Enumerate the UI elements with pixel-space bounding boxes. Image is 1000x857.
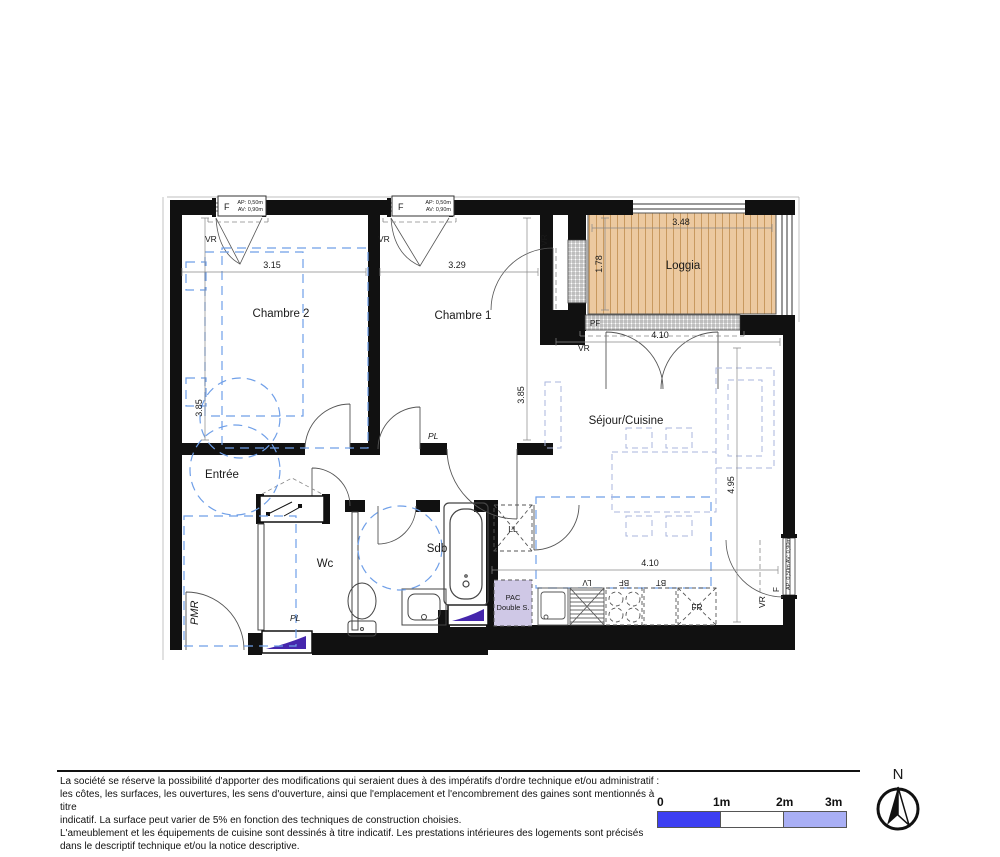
facade-vent-2 bbox=[448, 605, 488, 625]
title-block-rule bbox=[57, 770, 860, 772]
pf-label: PF bbox=[590, 319, 600, 328]
kitchen-appliances bbox=[538, 588, 716, 625]
scale-bar: 0 1m 2m 3m bbox=[657, 795, 847, 828]
fridge-label: FR bbox=[691, 602, 702, 612]
loggia-doors bbox=[606, 332, 718, 389]
scale-tick-2m: 2m bbox=[776, 795, 793, 809]
room-chambre1: Chambre 1 bbox=[435, 310, 492, 322]
north-label: N bbox=[893, 766, 904, 783]
partitions bbox=[258, 512, 358, 630]
dim-sejour-h: 4.95 bbox=[726, 476, 736, 494]
scale-tick-3m: 3m bbox=[825, 795, 842, 809]
window-ap-label: AP: 0,50m bbox=[425, 200, 451, 206]
vr-label-5: VR bbox=[757, 596, 767, 608]
dim-chambre1-h: 3.85 bbox=[516, 386, 526, 404]
disclaimer: La société se réserve la possibilité d'a… bbox=[60, 775, 660, 853]
room-chambre2: Chambre 2 bbox=[253, 308, 310, 320]
dishwasher-label: LV bbox=[582, 578, 592, 587]
side-window-spec: AP: 0,50m AV: 0,90m bbox=[786, 538, 792, 590]
disclaimer-line: dans le descriptif technique et/ou la no… bbox=[60, 840, 660, 853]
dim-loggia-w: 3.48 bbox=[672, 217, 690, 227]
room-pmr: PMR bbox=[189, 601, 201, 626]
dim-kitchen-w: 4.10 bbox=[641, 558, 659, 568]
room-wc: Wc bbox=[317, 558, 334, 570]
side-window-f: F bbox=[772, 587, 781, 592]
vr-label-1: VR bbox=[205, 234, 217, 244]
pac-unit: PAC Double S. bbox=[494, 580, 532, 626]
pac-label-1: PAC bbox=[506, 593, 521, 602]
bathtub bbox=[444, 503, 488, 605]
scale-tick-0: 0 bbox=[657, 795, 664, 809]
window-label-box-2: F AP: 0,50m AV: 0,90m bbox=[392, 196, 454, 216]
disclaimer-line: La société se réserve la possibilité d'a… bbox=[60, 775, 660, 788]
scale-segment-3 bbox=[784, 812, 846, 827]
north-arrow-svg: N bbox=[868, 765, 928, 840]
north-arrow: N bbox=[868, 765, 928, 845]
chambre2-furniture bbox=[186, 248, 368, 458]
window-ap-label: AP: 0,50m bbox=[237, 200, 263, 206]
vr-label-3: VR bbox=[539, 234, 549, 246]
vr-label-4: VR bbox=[578, 343, 590, 353]
window-av-label: AV: 0,90m bbox=[238, 207, 263, 213]
dim-loggia-h: 1.78 bbox=[594, 255, 604, 273]
window-f-label: F bbox=[224, 202, 230, 212]
dim-chambre2-w: 3.15 bbox=[263, 260, 281, 270]
window-av-label: AV: 0,90m bbox=[426, 207, 451, 213]
window-label-box-side: AP: 0,50m AV: 0,90m F bbox=[772, 538, 792, 592]
disclaimer-line: indicatif. La surface peut varier de 5% … bbox=[60, 814, 660, 827]
disclaimer-line: L'ameublement et les équipements de cuis… bbox=[60, 827, 660, 840]
room-sdb: Sdb bbox=[427, 543, 447, 555]
scale-bar-segments bbox=[657, 811, 847, 828]
closet-pl-1: PL bbox=[290, 613, 301, 623]
scale-tick-1m: 1m bbox=[713, 795, 730, 809]
floor-plan-drawing: F AP: 0,50m AV: 0,90m F AP: 0,50m AV: 0,… bbox=[0, 0, 1000, 770]
room-loggia: Loggia bbox=[666, 260, 701, 272]
kitchen-zone-dash bbox=[536, 497, 711, 588]
dim-chambre1-w: 3.29 bbox=[448, 260, 466, 270]
vr-label-2: VR bbox=[378, 234, 390, 244]
scale-bar-ticks: 0 1m 2m 3m bbox=[657, 795, 847, 811]
scale-segment-1 bbox=[658, 812, 721, 827]
room-entree: Entrée bbox=[205, 469, 239, 481]
facade-vent-1 bbox=[262, 631, 312, 653]
counter-label: BT bbox=[656, 578, 666, 587]
room-sejour: Séjour/Cuisine bbox=[589, 415, 664, 427]
window-label-box-1: F AP: 0,50m AV: 0,90m bbox=[218, 196, 266, 216]
disclaimer-line: les côtes, les surfaces, les ouvertures,… bbox=[60, 788, 660, 814]
pac-label-2: Double S. bbox=[497, 603, 530, 612]
closet-pl-2: PL bbox=[428, 431, 439, 441]
washing-machine-label: LL bbox=[508, 524, 518, 534]
window-f-label: F bbox=[398, 202, 404, 212]
floor-plan-page: { "rooms": { "chambre2": "Chambre 2", "c… bbox=[0, 0, 1000, 857]
dim-chambre2-h: 3.85 bbox=[194, 399, 204, 417]
scale-segment-2 bbox=[721, 812, 784, 827]
dim-sejour-w: 4.10 bbox=[651, 330, 669, 340]
sejour-furniture bbox=[545, 368, 774, 536]
oven-label: BF bbox=[619, 578, 629, 587]
